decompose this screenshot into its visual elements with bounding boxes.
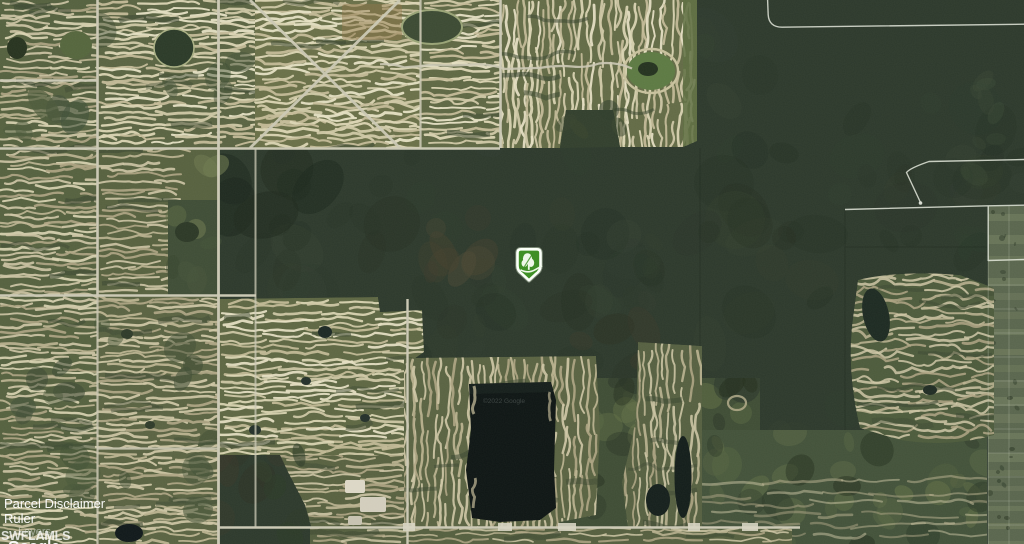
svg-text:Parcel Disclaimer: Parcel Disclaimer [4,496,106,511]
svg-text:Google: Google [8,538,60,544]
svg-text:Ruler: Ruler [4,511,36,526]
